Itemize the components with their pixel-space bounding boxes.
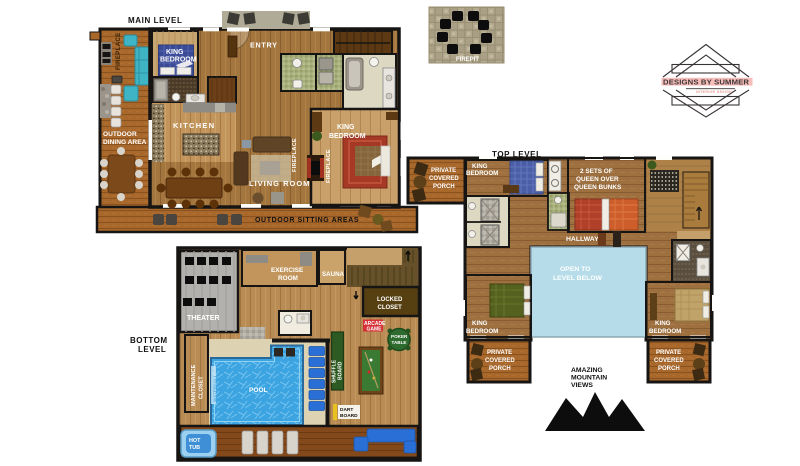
svg-text:PRIVATE: PRIVATE: [487, 350, 512, 356]
svg-text:DESIGNS BY SUMMER: DESIGNS BY SUMMER: [663, 78, 749, 87]
svg-text:LIVING ROOM: LIVING ROOM: [249, 179, 310, 188]
svg-text:LEVEL BELOW: LEVEL BELOW: [553, 275, 603, 282]
svg-text:POKER: POKER: [391, 334, 408, 339]
svg-text:DINING AREA: DINING AREA: [103, 139, 147, 146]
svg-text:PRIVATE: PRIVATE: [656, 350, 681, 356]
svg-text:KING: KING: [472, 320, 488, 327]
svg-text:SAUNA: SAUNA: [322, 271, 345, 278]
svg-text:TABLE: TABLE: [392, 340, 407, 345]
svg-text:MOUNTAIN: MOUNTAIN: [571, 375, 607, 382]
svg-text:BEDROOM: BEDROOM: [466, 328, 498, 335]
svg-text:TUB: TUB: [189, 445, 200, 451]
svg-text:KING: KING: [655, 320, 671, 327]
svg-text:FIREPLACE: FIREPLACE: [292, 138, 298, 172]
svg-text:BEDROOM: BEDROOM: [160, 57, 197, 64]
svg-text:BEDROOM: BEDROOM: [329, 133, 366, 140]
svg-text:OUTDOOR: OUTDOOR: [103, 131, 137, 138]
svg-text:BEDROOM: BEDROOM: [649, 328, 681, 335]
svg-text:PORCH: PORCH: [658, 366, 680, 372]
svg-text:FIREPIT: FIREPIT: [456, 57, 479, 63]
svg-text:BEDROOM: BEDROOM: [466, 170, 498, 177]
svg-text:BOARD: BOARD: [338, 361, 344, 380]
svg-text:KING: KING: [472, 163, 488, 170]
svg-text:MAIN LEVEL: MAIN LEVEL: [128, 16, 182, 25]
svg-text:KING: KING: [337, 124, 355, 131]
svg-text:PORCH: PORCH: [433, 184, 455, 190]
svg-text:BOARD: BOARD: [340, 413, 358, 419]
svg-text:GAME: GAME: [367, 327, 383, 333]
svg-text:HOT: HOT: [189, 438, 201, 444]
svg-text:ENTRY: ENTRY: [250, 41, 278, 50]
svg-text:2 SETS OF: 2 SETS OF: [580, 168, 613, 175]
svg-text:BOTTOM: BOTTOM: [130, 336, 168, 345]
svg-text:COVERED: COVERED: [485, 358, 515, 364]
svg-text:OPEN TO: OPEN TO: [560, 266, 590, 273]
svg-text:ROOM: ROOM: [278, 275, 298, 282]
svg-text:WATERFALL: WATERFALL: [213, 374, 218, 402]
svg-text:OUTDOOR SITTING AREAS: OUTDOOR SITTING AREAS: [255, 217, 359, 224]
svg-text:POOL: POOL: [249, 387, 268, 394]
svg-text:QUEEN BUNKS: QUEEN BUNKS: [574, 184, 622, 191]
svg-text:PRIVATE: PRIVATE: [431, 168, 456, 174]
svg-text:THEATER: THEATER: [187, 315, 220, 322]
svg-text:KING: KING: [166, 49, 184, 56]
svg-text:COVERED: COVERED: [654, 358, 684, 364]
svg-text:AMAZING: AMAZING: [571, 367, 603, 374]
svg-text:FIREPLACE: FIREPLACE: [326, 149, 332, 183]
svg-text:EXERCISE: EXERCISE: [271, 267, 304, 274]
svg-text:INTERIOR DESIGN: INTERIOR DESIGN: [696, 90, 732, 94]
svg-text:FIREPLACE: FIREPLACE: [116, 32, 122, 70]
svg-text:MAINTENANCE: MAINTENANCE: [191, 364, 197, 406]
svg-text:HALLWAY: HALLWAY: [566, 236, 599, 243]
svg-text:LOCKED: LOCKED: [377, 297, 403, 303]
svg-text:DART: DART: [340, 407, 353, 413]
svg-text:CLOSET: CLOSET: [199, 376, 205, 399]
svg-text:KITCHEN: KITCHEN: [173, 121, 215, 130]
svg-text:CLOSET: CLOSET: [378, 305, 403, 311]
svg-text:LEVEL: LEVEL: [138, 345, 166, 354]
svg-text:VIEWS: VIEWS: [571, 382, 593, 389]
svg-text:QUEEN OVER: QUEEN OVER: [576, 176, 619, 183]
svg-text:COVERED: COVERED: [429, 176, 459, 182]
svg-text:PORCH: PORCH: [489, 366, 511, 372]
